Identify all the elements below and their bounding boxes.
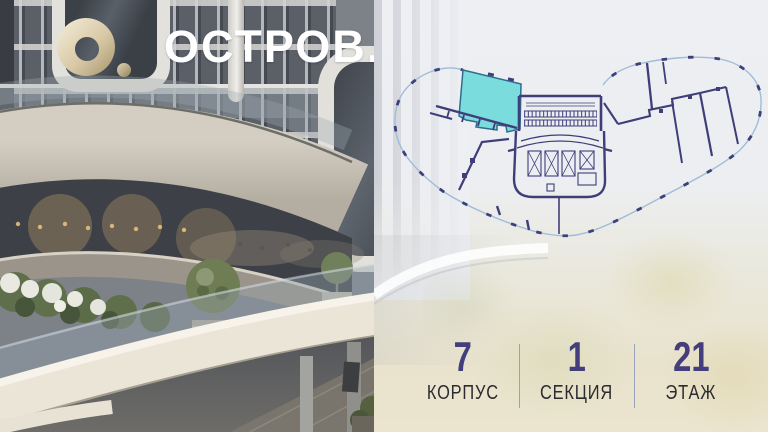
stats-row: 7 КОРПУС 1 СЕКЦИЯ 21 ЭТАЖ (406, 338, 748, 418)
building-photo: ОСТРОВ. (0, 0, 374, 432)
floor-label: ЭТАЖ (666, 382, 717, 405)
brand-wordmark: ОСТРОВ. (164, 14, 374, 80)
menu-board (342, 361, 360, 392)
promo-slide: ОСТРОВ. (0, 0, 768, 432)
plan-outline (395, 57, 761, 236)
section-number: 1 (568, 338, 586, 376)
o-ring-icon (54, 14, 136, 80)
building-label: КОРПУС (427, 382, 499, 405)
building-number: 7 (454, 338, 472, 376)
info-panel: 7 КОРПУС 1 СЕКЦИЯ 21 ЭТАЖ (374, 0, 768, 432)
brand-logo: ОСТРОВ. (54, 14, 374, 80)
section-label: СЕКЦИЯ (540, 382, 613, 405)
plan-balcony-dashes (395, 57, 761, 236)
floor-number: 21 (673, 338, 709, 376)
stat-building: 7 КОРПУС (406, 338, 519, 418)
stat-section: 1 СЕКЦИЯ (520, 338, 633, 418)
stat-floor: 21 ЭТАЖ (635, 338, 748, 418)
column (300, 356, 313, 432)
